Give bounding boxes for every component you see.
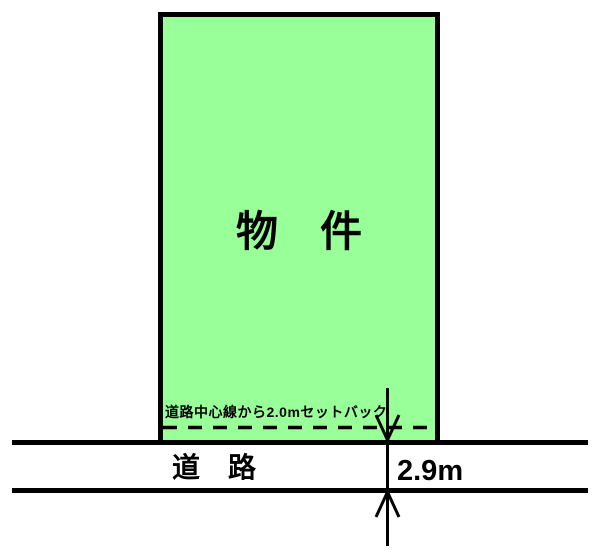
- road-label: 道 路: [172, 452, 256, 484]
- site-plan-diagram: 物 件 道路中心線から2.0mセットバック 道 路 2.9m: [0, 0, 600, 553]
- setback-note-label: 道路中心線から2.0mセットバック: [165, 403, 387, 421]
- property-label: 物 件: [158, 210, 440, 254]
- road-width-dimension-label: 2.9m: [397, 455, 463, 487]
- dimension-up-arrowhead-icon: [376, 492, 399, 517]
